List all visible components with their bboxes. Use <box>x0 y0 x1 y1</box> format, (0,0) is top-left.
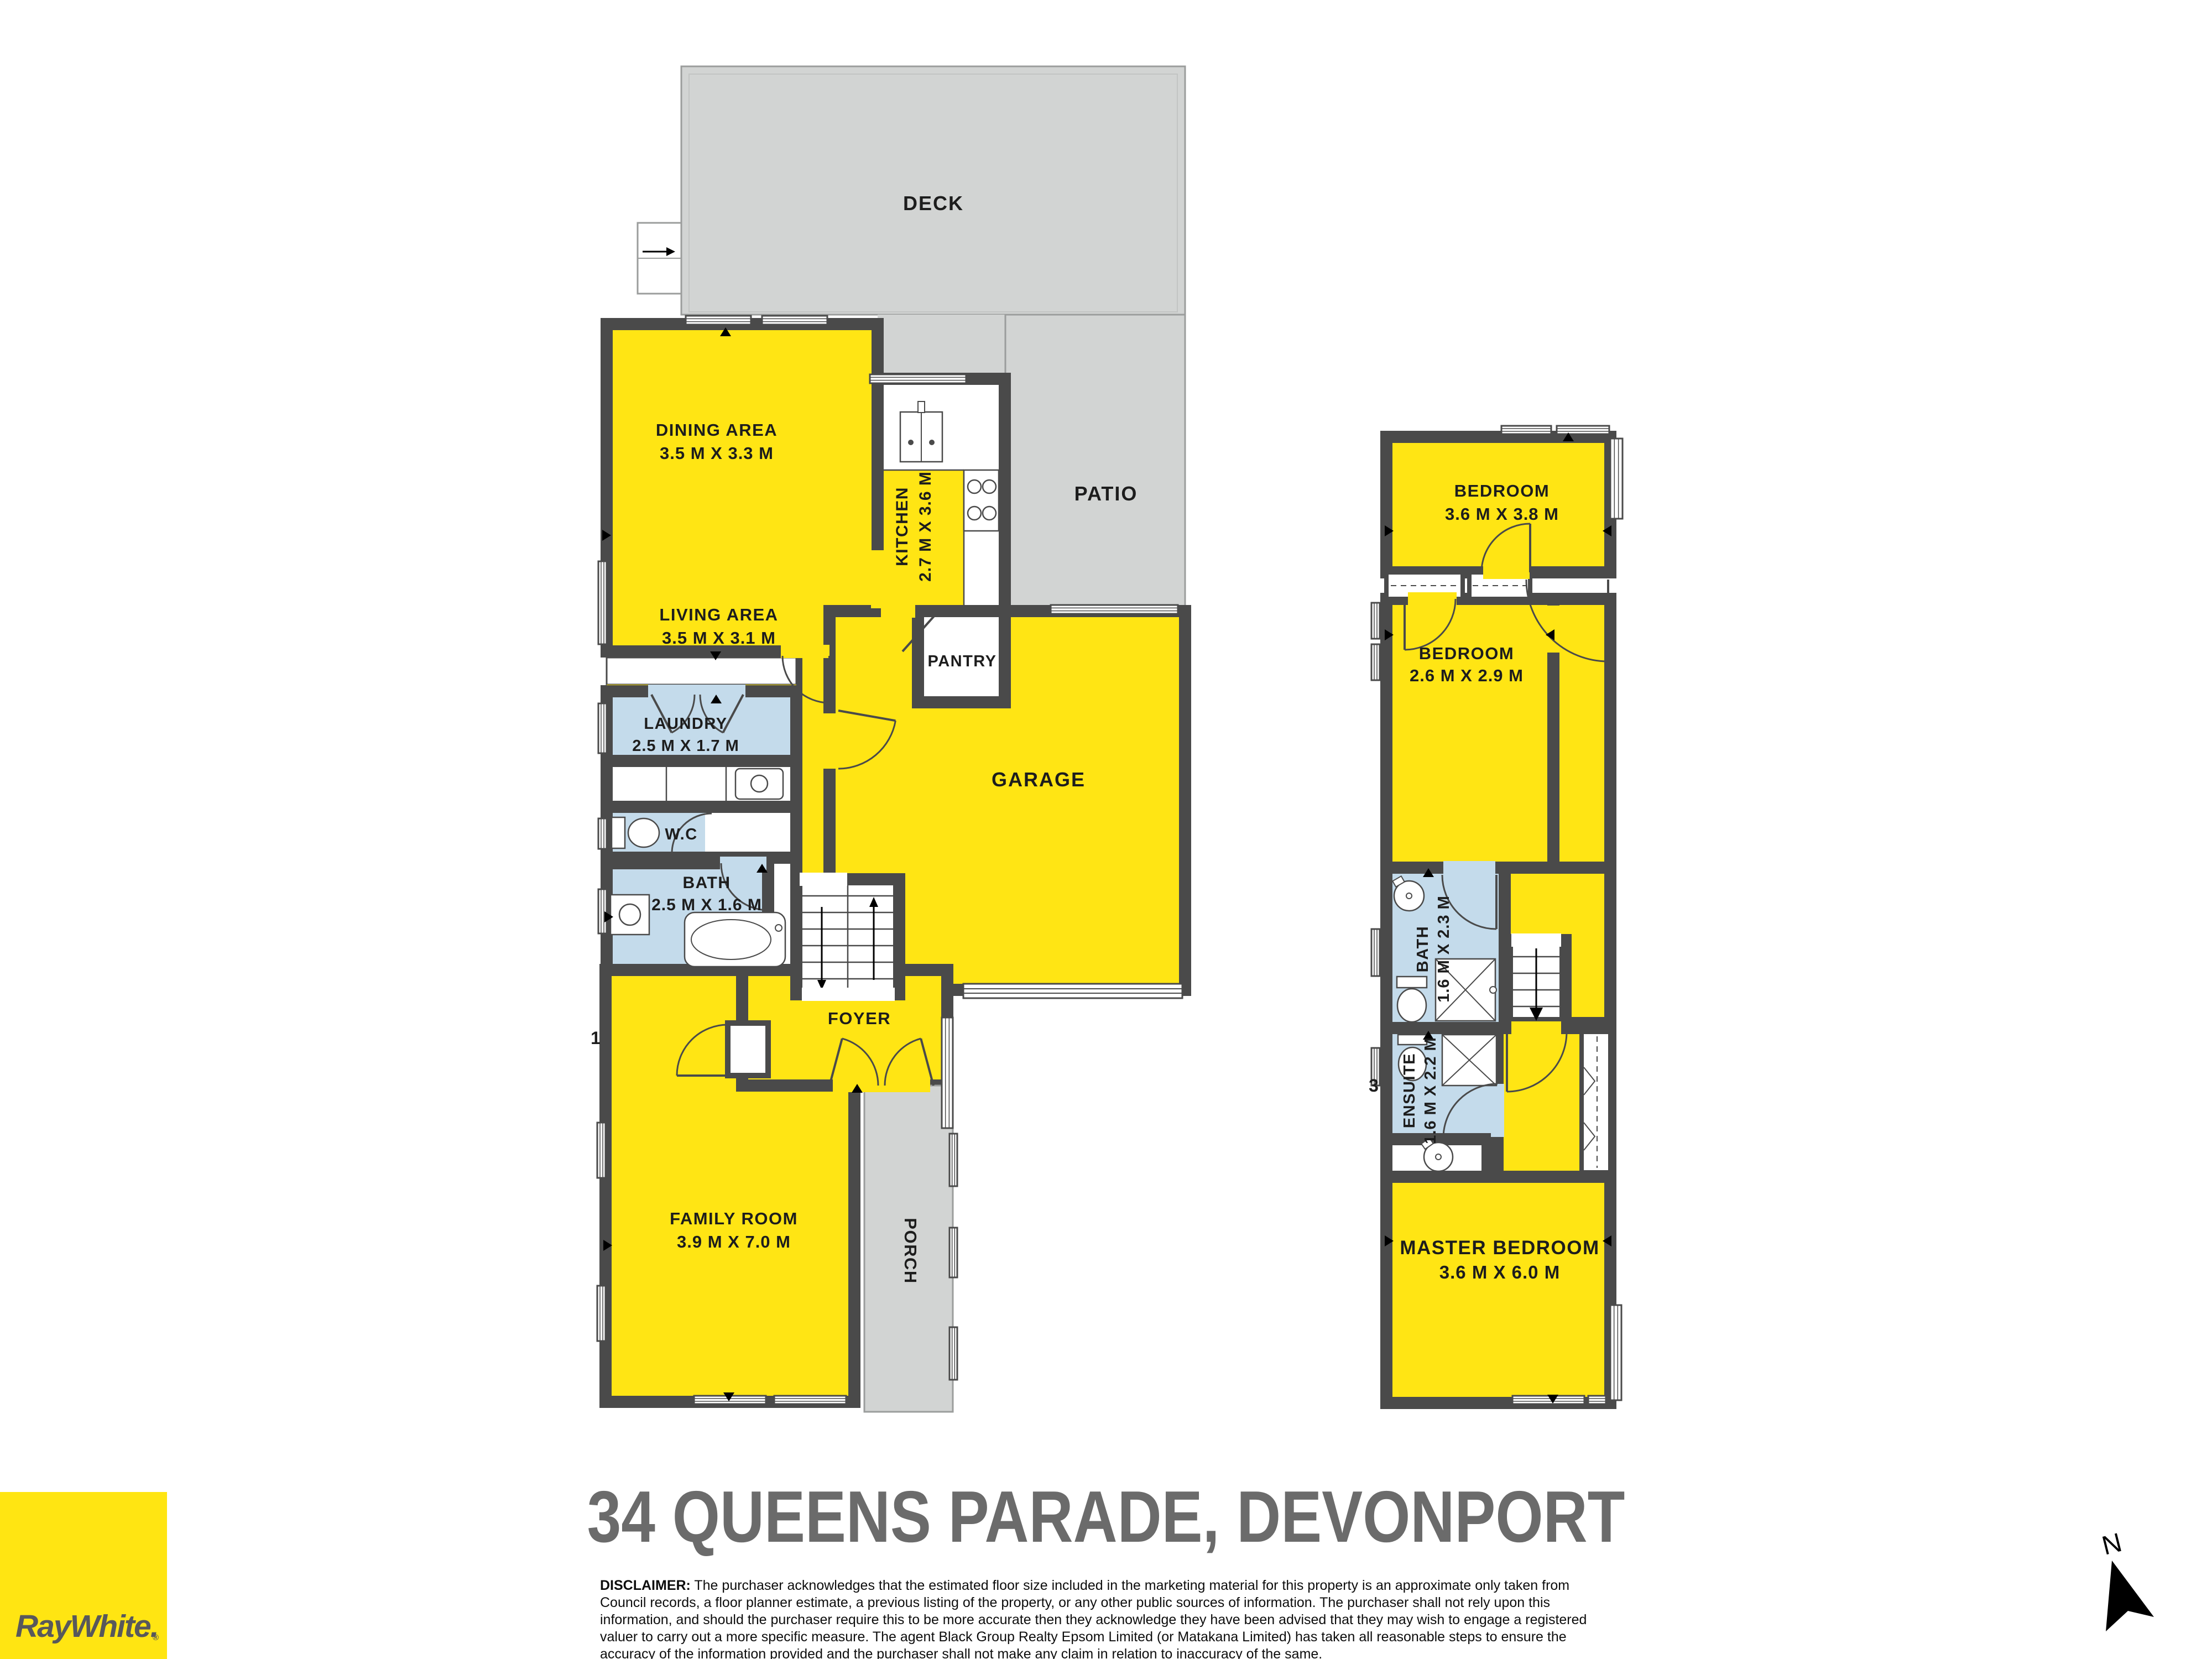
ensuite-label: ENSUITE <box>1401 1053 1418 1128</box>
north-arrow: N <box>2099 1528 2154 1631</box>
laundry-bench <box>607 658 796 685</box>
master-dims: 3.6 M X 6.0 M <box>1439 1262 1560 1282</box>
bath-label: BATH <box>682 874 731 892</box>
bedroom1-dims: 3.6 M X 3.8 M <box>1445 504 1559 524</box>
north-arrow-icon <box>2106 1561 2154 1631</box>
room-bedroom2 <box>1386 599 1553 868</box>
patio-label: PATIO <box>1074 482 1138 505</box>
living-label: LIVING AREA <box>659 605 778 624</box>
kitchen-label: KITCHEN <box>893 487 911 566</box>
bath-toilet-icon <box>1397 977 1427 988</box>
bath-upper-label: BATH <box>1414 926 1432 972</box>
kitchen-stove-icon <box>964 470 999 531</box>
wc-toilet-icon <box>612 817 625 848</box>
floor-number-ground: 1 <box>591 1028 601 1048</box>
deck-extension <box>878 315 1005 381</box>
room-dining-living <box>607 324 878 651</box>
raywhite-logo: RayWhite. ® <box>0 1492 167 1659</box>
bedroom2-label: BEDROOM <box>1419 644 1514 663</box>
master-label: MASTER BEDROOM <box>1400 1237 1599 1259</box>
dining-dims: 3.5 M X 3.3 M <box>660 444 774 463</box>
north-label: N <box>2099 1528 2125 1561</box>
laundry-tub-icon <box>735 769 783 799</box>
bathtub-icon <box>685 912 785 967</box>
garage-label: GARAGE <box>992 768 1086 791</box>
bedroom2-dims: 2.6 M X 2.9 M <box>1410 666 1524 685</box>
raywhite-logo-text: RayWhite. <box>15 1608 158 1645</box>
bath-upper-dims: 1.6 M X 2.3 M <box>1435 895 1453 1003</box>
foyer-label: FOYER <box>828 1009 891 1028</box>
kitchen-dims: 2.7 M X 3.6 M <box>916 471 935 582</box>
wc-lobby <box>712 807 796 858</box>
bath-vanity-icon <box>611 895 649 935</box>
living-dims: 3.5 M X 3.1 M <box>662 628 776 648</box>
pantry-label: PANTRY <box>928 653 997 670</box>
floor-plan-page: DECK PATIO DINING AREA 3.5 M X 3.3 M LIV… <box>0 0 2212 1659</box>
bath-dims: 2.5 M X 1.6 M <box>651 896 762 914</box>
laundry-label: LAUNDRY <box>644 715 727 733</box>
porch-label: PORCH <box>901 1218 920 1284</box>
bedroom1-label: BEDROOM <box>1454 481 1550 500</box>
wc-label: W.C <box>665 826 697 843</box>
floor-plan-canvas: DECK PATIO DINING AREA 3.5 M X 3.3 M LIV… <box>0 0 2212 1659</box>
disclaimer-label: DISCLAIMER: <box>600 1578 691 1593</box>
foyer-closet <box>728 1023 768 1076</box>
dining-label: DINING AREA <box>656 420 778 440</box>
deck-area <box>681 66 1185 315</box>
room-master <box>1386 1177 1610 1403</box>
disclaimer: DISCLAIMER: The purchaser acknowledges t… <box>600 1577 1606 1659</box>
registered-mark: ® <box>153 1633 159 1642</box>
ensuite-dims: 1.6 M X 2.2 M <box>1422 1037 1439 1144</box>
page-title: 34 QUEENS PARADE, DEVONPORT <box>587 1476 1625 1557</box>
family-dims: 3.9 M X 7.0 M <box>677 1232 791 1251</box>
family-label: FAMILY ROOM <box>670 1209 798 1228</box>
deck-label: DECK <box>903 192 964 215</box>
disclaimer-text: The purchaser acknowledges that the esti… <box>600 1578 1587 1659</box>
garage-door <box>963 984 1182 998</box>
patio-area <box>1005 315 1185 607</box>
laundry-dims: 2.5 M X 1.7 M <box>632 737 739 755</box>
master-wardrobe <box>1582 1032 1610 1172</box>
floor-number-upper: 3 <box>1369 1076 1379 1095</box>
